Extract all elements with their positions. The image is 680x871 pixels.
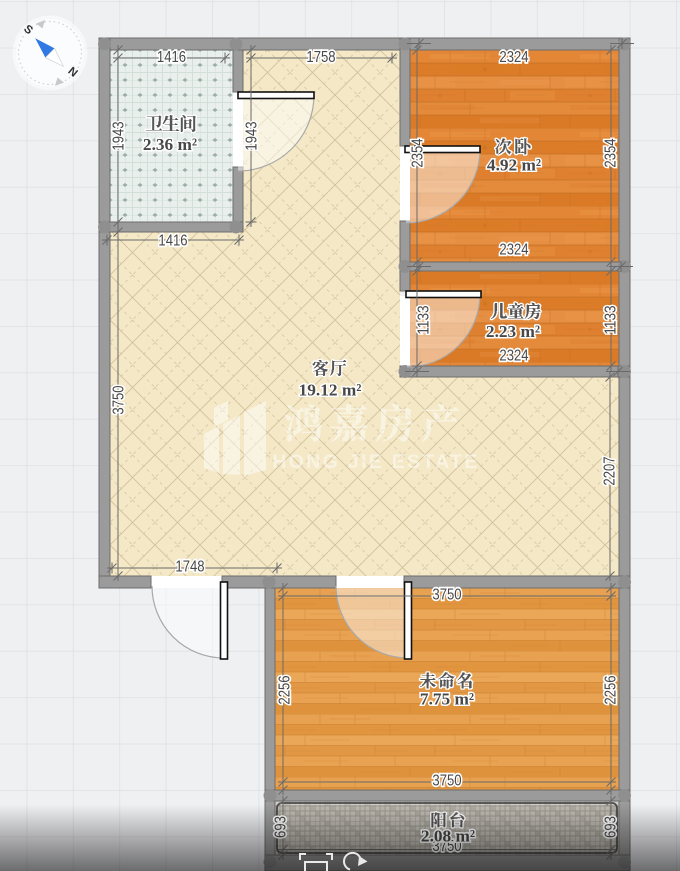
svg-text:3750: 3750 xyxy=(432,587,461,604)
svg-text:2207: 2207 xyxy=(602,456,619,485)
svg-text:2324: 2324 xyxy=(499,49,528,66)
svg-text:1133: 1133 xyxy=(416,305,433,334)
svg-text:HONG JIE ESTATE: HONG JIE ESTATE xyxy=(272,451,479,473)
svg-text:1416: 1416 xyxy=(157,49,186,66)
svg-text:7.75 m²: 7.75 m² xyxy=(420,690,474,709)
svg-text:2354: 2354 xyxy=(603,138,620,167)
svg-text:3750: 3750 xyxy=(111,385,128,414)
svg-text:2354: 2354 xyxy=(410,138,427,167)
svg-text:2256: 2256 xyxy=(277,675,294,704)
svg-text:2324: 2324 xyxy=(499,348,528,365)
svg-text:1943: 1943 xyxy=(244,121,261,150)
svg-text:2324: 2324 xyxy=(499,242,528,259)
svg-text:1133: 1133 xyxy=(603,305,620,334)
svg-text:2.23 m²: 2.23 m² xyxy=(486,322,540,341)
svg-text:4.92 m²: 4.92 m² xyxy=(487,156,541,175)
svg-text:1748: 1748 xyxy=(175,559,204,576)
svg-text:1758: 1758 xyxy=(306,49,335,66)
svg-text:2.36 m²: 2.36 m² xyxy=(143,135,197,154)
svg-text:2256: 2256 xyxy=(603,675,620,704)
svg-text:3750: 3750 xyxy=(432,773,461,790)
svg-text:1943: 1943 xyxy=(111,121,128,150)
svg-text:19.12 m²: 19.12 m² xyxy=(299,381,362,400)
svg-text:1416: 1416 xyxy=(158,233,187,250)
